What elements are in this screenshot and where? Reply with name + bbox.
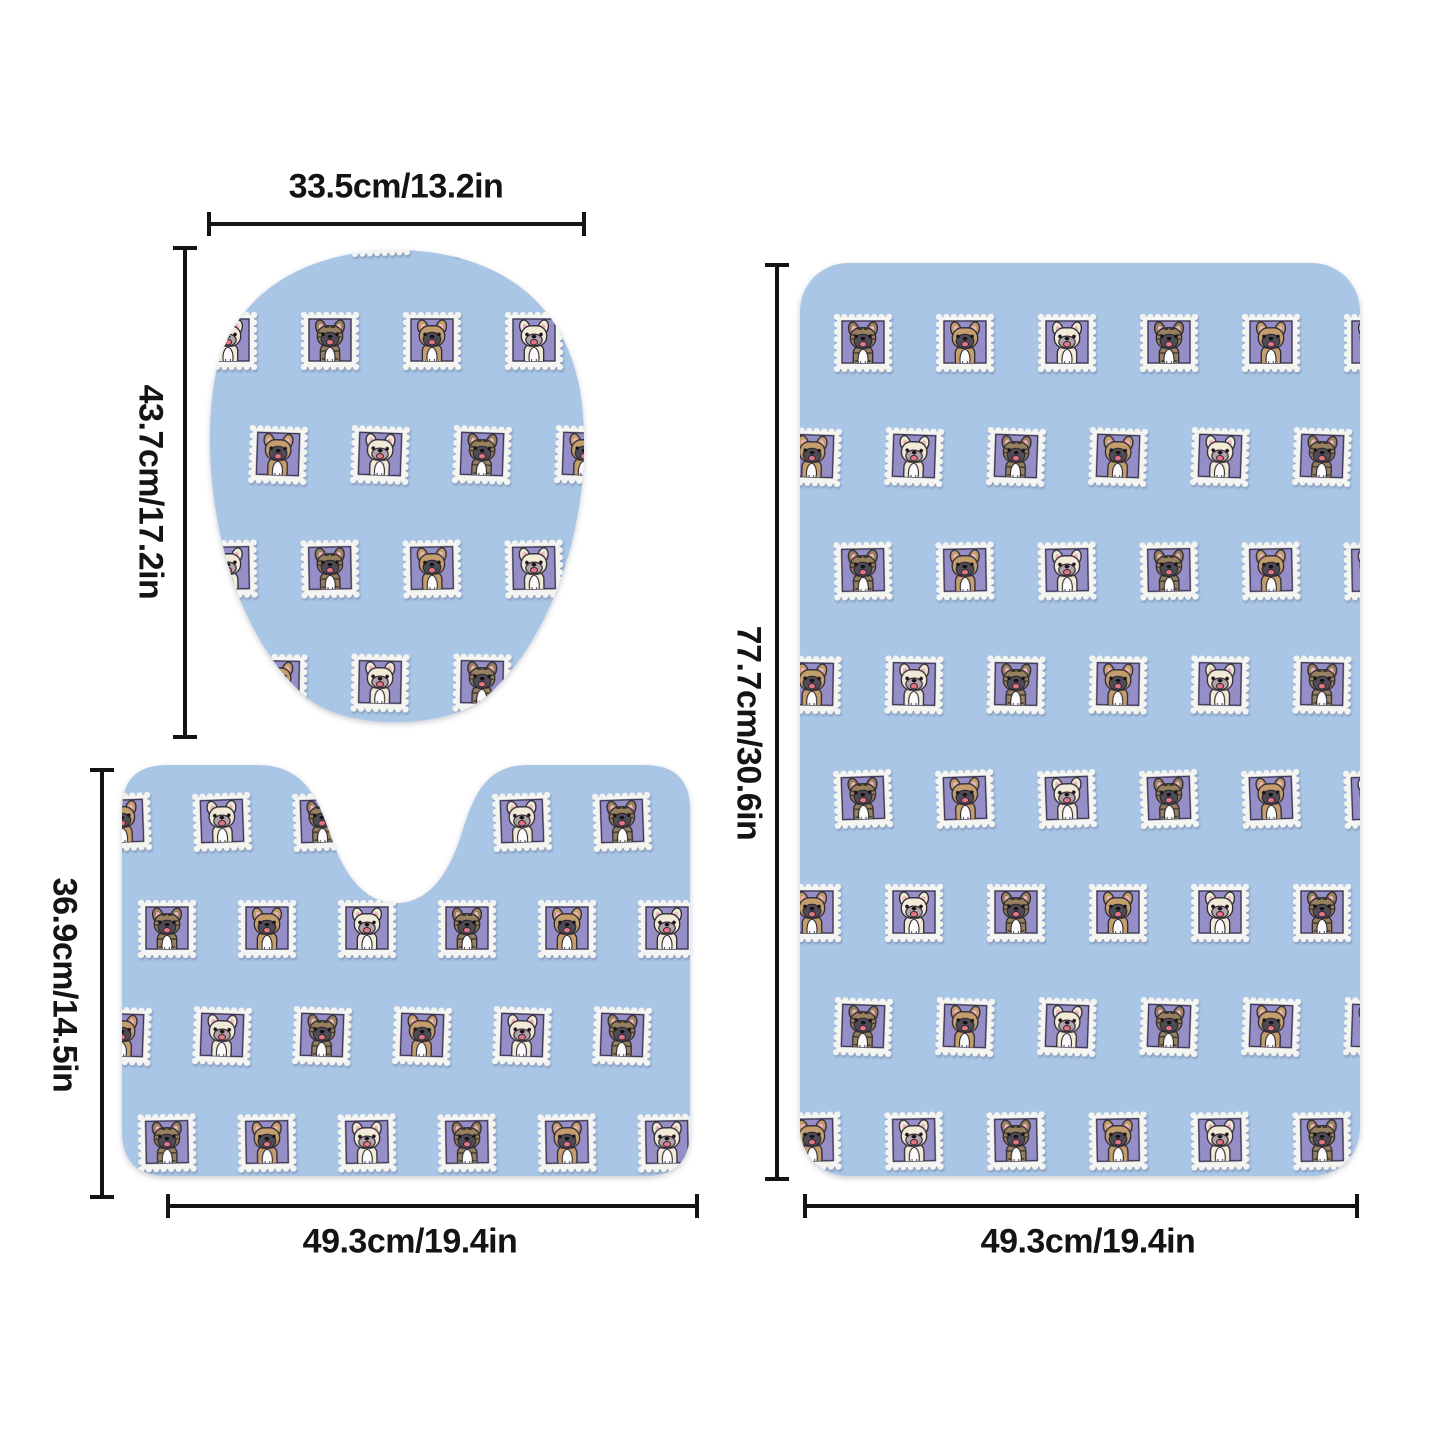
lid-width-dimension-line [209, 212, 584, 236]
french-bulldog-stamp-icon [138, 900, 196, 958]
french-bulldog-stamp-icon [834, 314, 892, 372]
french-bulldog-stamp-icon [437, 1113, 496, 1172]
french-bulldog-stamp-icon [505, 312, 563, 370]
french-bulldog-stamp-icon [986, 199, 1046, 259]
lid-height-dimension-line [173, 248, 197, 737]
french-bulldog-stamp-icon [301, 312, 359, 370]
french-bulldog-stamp-icon [504, 539, 563, 598]
french-bulldog-stamp-icon [833, 997, 893, 1057]
french-bulldog-stamp-icon [192, 1006, 252, 1066]
french-bulldog-stamp-icon [935, 541, 994, 600]
french-bulldog-stamp-icon [337, 1113, 396, 1172]
french-bulldog-stamp-icon [338, 900, 396, 958]
lid-height-label: 43.7cm/17.2in [131, 385, 170, 600]
lid-width-label: 33.5cm/13.2in [289, 168, 504, 207]
french-bulldog-stamp-icon [1190, 427, 1250, 487]
french-bulldog-stamp-icon [884, 655, 943, 714]
french-bulldog-stamp-icon [1037, 769, 1097, 829]
french-bulldog-stamp-icon [1241, 997, 1301, 1057]
contour-height-dimension-line [90, 770, 114, 1197]
french-bulldog-stamp-icon [1190, 199, 1250, 259]
french-bulldog-stamp-icon [783, 884, 841, 942]
french-bulldog-stamp-icon [1190, 655, 1249, 714]
bathmat-width-label: 49.3cm/19.4in [981, 1223, 1196, 1262]
french-bulldog-stamp-icon [1037, 541, 1096, 600]
french-bulldog-stamp-icon [1037, 997, 1097, 1057]
french-bulldog-stamp-icon [935, 769, 995, 829]
contour-width-dimension-line [168, 1194, 697, 1218]
french-bulldog-stamp-icon [782, 199, 842, 259]
french-bulldog-stamp-icon [885, 884, 943, 942]
french-bulldog-stamp-icon [438, 900, 496, 958]
french-bulldog-stamp-icon [492, 792, 552, 852]
french-bulldog-stamp-icon [350, 653, 409, 712]
french-bulldog-stamp-icon [1140, 314, 1198, 372]
french-bulldog-stamp-icon [137, 1113, 196, 1172]
french-bulldog-stamp-icon [492, 1006, 552, 1066]
french-bulldog-stamp-icon [1343, 997, 1403, 1057]
french-bulldog-stamp-icon [392, 1006, 452, 1066]
french-bulldog-stamp-icon [1241, 769, 1301, 829]
contour-width-label: 49.3cm/19.4in [303, 1223, 518, 1262]
french-bulldog-stamp-icon [1088, 1111, 1147, 1170]
bathmat-width-dimension-line [805, 1194, 1357, 1218]
french-bulldog-stamp-icon [1343, 541, 1402, 600]
french-bulldog-stamp-icon [237, 1113, 296, 1172]
french-bulldog-stamp-icon [782, 427, 842, 487]
bathmat-height-dimension-line [765, 265, 789, 1179]
french-bulldog-stamp-icon [350, 425, 410, 485]
french-bulldog-stamp-icon [936, 314, 994, 372]
french-bulldog-stamp-icon [1292, 1111, 1351, 1170]
french-bulldog-stamp-icon [592, 1006, 652, 1066]
bathmat-height-label: 77.7cm/30.6in [729, 626, 768, 841]
product-dimension-diagram: 33.5cm/13.2in 43.7cm/17.2in 36.9cm/14.5i… [0, 0, 1445, 1445]
french-bulldog-stamp-icon [782, 1111, 841, 1170]
french-bulldog-stamp-icon [238, 900, 296, 958]
french-bulldog-stamp-icon [884, 1111, 943, 1170]
french-bulldog-stamp-icon [782, 655, 841, 714]
french-bulldog-stamp-icon [1038, 314, 1096, 372]
french-bulldog-stamp-icon [1292, 199, 1352, 259]
contour-height-label: 36.9cm/14.5in [45, 878, 84, 1093]
french-bulldog-stamp-icon [1088, 199, 1148, 259]
french-bulldog-stamp-icon [1139, 997, 1199, 1057]
toilet-lid-cover [198, 197, 614, 722]
french-bulldog-stamp-icon [833, 541, 892, 600]
bath-mat [782, 199, 1403, 1176]
french-bulldog-stamp-icon [292, 792, 352, 852]
french-bulldog-stamp-icon [248, 653, 307, 712]
french-bulldog-stamp-icon [1089, 884, 1147, 942]
french-bulldog-stamp-icon [199, 312, 257, 370]
french-bulldog-stamp-icon [1088, 655, 1147, 714]
french-bulldog-stamp-icon [300, 539, 359, 598]
french-bulldog-stamp-icon [637, 1113, 696, 1172]
french-bulldog-stamp-icon [538, 900, 596, 958]
french-bulldog-stamp-icon [1088, 427, 1148, 487]
french-bulldog-stamp-icon [1241, 541, 1300, 600]
french-bulldog-stamp-icon [986, 655, 1045, 714]
french-bulldog-stamp-icon [1139, 541, 1198, 600]
french-bulldog-stamp-icon [403, 312, 461, 370]
french-bulldog-stamp-icon [986, 427, 1046, 487]
french-bulldog-stamp-icon [1242, 314, 1300, 372]
french-bulldog-stamp-icon [1292, 655, 1351, 714]
french-bulldog-stamp-icon [554, 425, 614, 485]
french-bulldog-stamp-icon [1292, 427, 1352, 487]
french-bulldog-stamp-icon [833, 769, 893, 829]
french-bulldog-stamp-icon [1344, 314, 1402, 372]
french-bulldog-stamp-icon [592, 792, 652, 852]
mat-set-illustration [0, 0, 1445, 1445]
french-bulldog-stamp-icon [452, 425, 512, 485]
french-bulldog-stamp-icon [1191, 884, 1249, 942]
french-bulldog-stamp-icon [198, 539, 257, 598]
french-bulldog-stamp-icon [248, 425, 308, 485]
french-bulldog-stamp-icon [452, 653, 511, 712]
french-bulldog-stamp-icon [935, 997, 995, 1057]
french-bulldog-stamp-icon [986, 1111, 1045, 1170]
french-bulldog-stamp-icon [884, 199, 944, 259]
french-bulldog-stamp-icon [638, 900, 696, 958]
french-bulldog-stamp-icon [554, 653, 613, 712]
french-bulldog-stamp-icon [1139, 769, 1199, 829]
french-bulldog-stamp-icon [1293, 884, 1351, 942]
french-bulldog-stamp-icon [1190, 1111, 1249, 1170]
french-bulldog-stamp-icon [1343, 769, 1403, 829]
french-bulldog-stamp-icon [192, 792, 252, 852]
french-bulldog-stamp-icon [402, 539, 461, 598]
french-bulldog-stamp-icon [884, 427, 944, 487]
contour-mat [92, 765, 697, 1176]
french-bulldog-stamp-icon [392, 792, 452, 852]
french-bulldog-stamp-icon [537, 1113, 596, 1172]
french-bulldog-stamp-icon [987, 884, 1045, 942]
french-bulldog-stamp-icon [292, 1006, 352, 1066]
